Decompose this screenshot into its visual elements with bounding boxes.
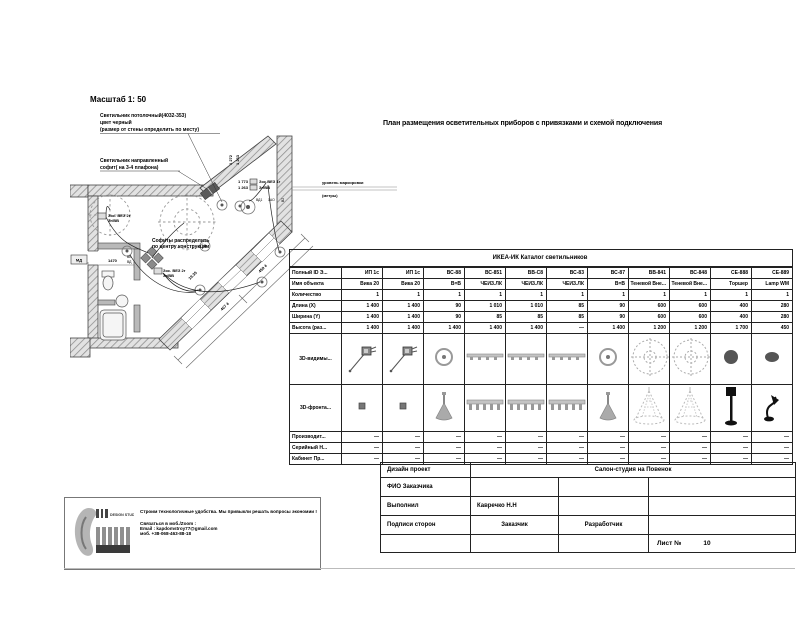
footer-tagline: Строим технологичные удобства. Мы привык… bbox=[140, 509, 317, 514]
track-icon bbox=[465, 334, 506, 385]
spec-cell: ВС-83 bbox=[547, 267, 588, 279]
spec-cell: 1 400 bbox=[588, 323, 629, 334]
done-extra bbox=[559, 497, 649, 516]
spec-cell: — bbox=[588, 443, 629, 454]
fio-label: ФИО Заказчика bbox=[381, 478, 471, 497]
bd-label: ВД bbox=[127, 260, 132, 264]
spec-cell: ВС-87 bbox=[588, 267, 629, 279]
svg-text:софит( на 3-4 плафона): софит( на 3-4 плафона) bbox=[100, 164, 159, 171]
downlight-icon bbox=[424, 334, 465, 385]
table-lamp-icon bbox=[588, 385, 629, 432]
md-label: МД bbox=[76, 258, 82, 263]
spec-row: Ширина (Y)1 4001 40090858585906006004002… bbox=[290, 312, 793, 323]
spec-row-label: Серийный Н... bbox=[290, 443, 342, 454]
spec-cell: 1 bbox=[383, 290, 424, 301]
spotlight-icon bbox=[383, 334, 424, 385]
spec-cell: 1 bbox=[506, 290, 547, 301]
socket3-label1: Зос.ВЕЗ 1г bbox=[259, 179, 281, 184]
spec-cell: — bbox=[629, 443, 670, 454]
spec-cell: 1 bbox=[711, 290, 752, 301]
dim-1263a: 1 263 bbox=[235, 154, 240, 165]
spec-row-label: Ширина (Y) bbox=[290, 312, 342, 323]
dim-1935: 19.35 bbox=[187, 270, 198, 281]
table-lamp-icon bbox=[424, 385, 465, 432]
spec-cell: 1 400 bbox=[424, 323, 465, 334]
spec-cell: — bbox=[506, 443, 547, 454]
spec-cell: — bbox=[465, 443, 506, 454]
spec-cell: 1 400 bbox=[465, 323, 506, 334]
spec-cell: 1 400 bbox=[383, 312, 424, 323]
developer-label: Разработчик bbox=[559, 516, 649, 535]
spec-cell: ЧЕИЗ.ЛК bbox=[547, 279, 588, 290]
fio-value bbox=[471, 478, 559, 497]
spec-cell: 1 400 bbox=[383, 323, 424, 334]
spec-cell: 1 bbox=[752, 290, 793, 301]
spec-cell: Lamp WM bbox=[752, 279, 793, 290]
spec-cell: — bbox=[670, 432, 711, 443]
spec-cell: 1 700 bbox=[711, 323, 752, 334]
spec-cell: — bbox=[383, 443, 424, 454]
spec-cell: — bbox=[752, 443, 793, 454]
spec-cell: 1 bbox=[547, 290, 588, 301]
project-name: Салон-студия на Повенок bbox=[471, 463, 796, 478]
square-icon bbox=[342, 385, 383, 432]
spec-cell: 1 010 bbox=[506, 301, 547, 312]
track-icon bbox=[547, 334, 588, 385]
spec-cell: — bbox=[547, 432, 588, 443]
spec-table-title: ИКЕА-ИК Каталог светильников bbox=[290, 250, 793, 268]
spec-cell: 90 bbox=[424, 312, 465, 323]
spec-row-label: Длина (X) bbox=[290, 301, 342, 312]
spec-cell: ЧЕИЗ.ЛК bbox=[506, 279, 547, 290]
sphere-small-icon bbox=[752, 334, 793, 385]
spec-cell: — bbox=[383, 432, 424, 443]
spec-cell: — bbox=[424, 432, 465, 443]
spec-row: Высота (раз...1 4001 4001 4001 4001 400—… bbox=[290, 323, 793, 334]
spec-cell: — bbox=[711, 443, 752, 454]
spec-cell: 1 400 bbox=[506, 323, 547, 334]
page-title: План размещения осветительных приборов с… bbox=[383, 120, 683, 127]
tree-cone-icon bbox=[629, 385, 670, 432]
svg-text:(метры): (метры) bbox=[322, 193, 338, 198]
spec-cell: 1 200 bbox=[629, 323, 670, 334]
spec-row-label: Производит... bbox=[290, 432, 342, 443]
socket2-label2: Зг/ВВ bbox=[163, 273, 174, 278]
footer-contact-3: моб. +38-068-463-88-18 bbox=[140, 531, 317, 536]
spec-cell: 1 bbox=[670, 290, 711, 301]
dim-1272: 1 272 bbox=[228, 154, 233, 165]
spec-cell: 90 bbox=[588, 301, 629, 312]
spec-cell: 90 bbox=[424, 301, 465, 312]
spec-cell: 450 bbox=[752, 323, 793, 334]
spec-cell: — bbox=[752, 432, 793, 443]
spec-row-label: Имя объекта bbox=[290, 279, 342, 290]
spec-cell: — bbox=[629, 432, 670, 443]
done-right bbox=[649, 497, 796, 516]
spec-cell: — bbox=[547, 443, 588, 454]
spec-cell: 1 400 bbox=[383, 301, 424, 312]
track-front-icon bbox=[465, 385, 506, 432]
spec-table: ИКЕА-ИК Каталог светильников Полный ID Э… bbox=[289, 249, 793, 465]
bathroom-fixtures bbox=[100, 271, 128, 340]
customer-label: Заказчик bbox=[471, 516, 559, 535]
spec-row: Полный ID Э...ИП 1сИП 1сВС-88ВС-851ВВ-С8… bbox=[290, 267, 793, 279]
logo-caption: DESIGN STUDIO bbox=[110, 513, 134, 517]
spec-cell: 400 bbox=[711, 312, 752, 323]
spec-cell: ИП 1с bbox=[383, 267, 424, 279]
center-note: Софиты распределить bbox=[152, 237, 209, 244]
spec-cell: 1 200 bbox=[670, 323, 711, 334]
socket1-label2: Зг/ВВ bbox=[108, 218, 119, 223]
bb-label: ВВ bbox=[127, 255, 132, 259]
level-leader bbox=[292, 187, 397, 190]
track-icon bbox=[506, 334, 547, 385]
sheet-bottom-rule bbox=[64, 568, 795, 569]
spec-row: Производит...——————————— bbox=[290, 432, 793, 443]
spec-row: Имя объектаВика 20Вика 20В=ВЧЕИЗ.ЛКЧЕИЗ.… bbox=[290, 279, 793, 290]
dim-1470: 1470 bbox=[108, 258, 118, 263]
signs-label: Подписи сторон bbox=[381, 516, 471, 535]
spec-cell: 280 bbox=[752, 312, 793, 323]
spec-cell: В=В bbox=[588, 279, 629, 290]
sphere-icon bbox=[711, 334, 752, 385]
spec-cell: 600 bbox=[629, 312, 670, 323]
spec-cell: СЕ-889 bbox=[752, 267, 793, 279]
dim-1263b: 1 263 bbox=[238, 185, 249, 190]
spec-row: Серийный Н...——————————— bbox=[290, 443, 793, 454]
spec-cell: 1 bbox=[588, 290, 629, 301]
spec-cell: — bbox=[506, 432, 547, 443]
spec-cell: 1 bbox=[629, 290, 670, 301]
spec-cell: — bbox=[711, 432, 752, 443]
spec-row: 3D-видимы... bbox=[290, 334, 793, 385]
fio-extra bbox=[559, 478, 649, 497]
a1o-label: 1АО bbox=[268, 198, 275, 202]
level-note: уровень маркировки bbox=[322, 180, 364, 185]
spec-cell: 90 bbox=[588, 312, 629, 323]
spec-cell: ВВ-841 bbox=[629, 267, 670, 279]
spec-cell: — bbox=[547, 323, 588, 334]
sheet-label: Лист № bbox=[657, 540, 681, 547]
tree-cone-icon bbox=[670, 385, 711, 432]
sheet-number: 10 bbox=[703, 540, 710, 547]
spec-cell: — bbox=[424, 443, 465, 454]
spec-cell: 400 bbox=[711, 301, 752, 312]
dim-407: 407 4 bbox=[219, 301, 230, 312]
spec-row-label: 3D-фронта... bbox=[290, 385, 342, 432]
svg-text:по центру конструкции: по центру конструкции bbox=[152, 244, 209, 250]
design-project-label: Дизайн проект bbox=[381, 463, 471, 478]
dim-1773: 1 773 bbox=[238, 179, 249, 184]
spec-row-label: Количество bbox=[290, 290, 342, 301]
spec-cell: Вика 20 bbox=[342, 279, 383, 290]
spec-cell: Вика 20 bbox=[383, 279, 424, 290]
spec-cell: 280 bbox=[752, 301, 793, 312]
floor-lamp-icon bbox=[711, 385, 752, 432]
spec-row-label: Высота (раз... bbox=[290, 323, 342, 334]
track-front-icon bbox=[547, 385, 588, 432]
spec-cell: ВС-848 bbox=[670, 267, 711, 279]
b2-label: В2 bbox=[281, 198, 285, 202]
done-value: Кавречко Н.Н bbox=[471, 497, 559, 516]
svg-text:цвет черный: цвет черный bbox=[100, 119, 132, 126]
fio-right bbox=[649, 478, 796, 497]
footer-box: DESIGN STUDIO Строим технологичные удобс… bbox=[64, 497, 321, 570]
spec-row-label: 3D-видимы... bbox=[290, 334, 342, 385]
bd1-label: ВД1 bbox=[256, 198, 262, 202]
svg-text:(размер от стены определить по: (размер от стены определить по месту) bbox=[100, 127, 199, 133]
spec-cell: 1 010 bbox=[465, 301, 506, 312]
spec-row-label: Кабинет Пр... bbox=[290, 454, 342, 465]
spec-cell: 1 400 bbox=[342, 301, 383, 312]
fixture2-note: Светильник направленный bbox=[100, 157, 168, 164]
spec-cell: 85 bbox=[465, 312, 506, 323]
spec-cell: — bbox=[342, 432, 383, 443]
spec-cell: — bbox=[342, 454, 383, 465]
spec-row-label: Полный ID Э... bbox=[290, 267, 342, 279]
downlight-icon bbox=[588, 334, 629, 385]
spec-cell: СЕ-888 bbox=[711, 267, 752, 279]
spec-cell: 600 bbox=[670, 301, 711, 312]
spec-cell: 1 bbox=[424, 290, 465, 301]
spec-cell: — bbox=[588, 432, 629, 443]
spec-cell: — bbox=[342, 443, 383, 454]
spec-cell: 600 bbox=[629, 301, 670, 312]
track-front-icon bbox=[506, 385, 547, 432]
chandelier-top-icon bbox=[670, 334, 711, 385]
studio-logo: DESIGN STUDIO bbox=[68, 501, 134, 565]
spec-cell: Теневой Вне... bbox=[670, 279, 711, 290]
chandelier-top-icon bbox=[629, 334, 670, 385]
spec-cell: Торшер bbox=[711, 279, 752, 290]
spec-table-body: Полный ID Э...ИП 1сИП 1сВС-88ВС-851ВВ-С8… bbox=[290, 267, 793, 465]
spec-cell: — bbox=[670, 443, 711, 454]
spec-cell: 1 400 bbox=[342, 312, 383, 323]
spec-cell: ВС-88 bbox=[424, 267, 465, 279]
spec-row: Количество11111111111 bbox=[290, 290, 793, 301]
spec-cell: ЧЕИЗ.ЛК bbox=[465, 279, 506, 290]
socket3-label2: Зг/ВВ bbox=[259, 185, 270, 190]
spec-cell: В=В bbox=[424, 279, 465, 290]
spec-cell: ИП 1с bbox=[342, 267, 383, 279]
spec-cell: Теневой Вне... bbox=[629, 279, 670, 290]
signs-right bbox=[649, 516, 796, 535]
spec-cell: 85 bbox=[547, 312, 588, 323]
done-label: Выполнил bbox=[381, 497, 471, 516]
spec-cell: — bbox=[465, 432, 506, 443]
spec-cell: 85 bbox=[547, 301, 588, 312]
spec-cell: 1 bbox=[342, 290, 383, 301]
square-icon bbox=[383, 385, 424, 432]
title-block: Дизайн проект Салон-студия на Повенок ФИ… bbox=[380, 462, 796, 553]
spec-cell: 85 bbox=[506, 312, 547, 323]
spec-cell: 1 400 bbox=[342, 323, 383, 334]
spec-cell: ВС-851 bbox=[465, 267, 506, 279]
scale-label: Масштаб 1: 50 bbox=[90, 95, 146, 104]
spotlight-icon bbox=[342, 334, 383, 385]
spec-cell: ВВ-С8 bbox=[506, 267, 547, 279]
spec-cell: 1 bbox=[465, 290, 506, 301]
desk-lamp-icon bbox=[752, 385, 793, 432]
spec-row: Длина (X)1 4001 400901 0101 010859060060… bbox=[290, 301, 793, 312]
fixture1-note: Светильник потолочный(4032-353) bbox=[100, 112, 186, 119]
spec-row: 3D-фронта... bbox=[290, 385, 793, 432]
plan-annotations: Светильник потолочный(4032-353) цвет чер… bbox=[100, 112, 364, 250]
spec-cell: 600 bbox=[670, 312, 711, 323]
